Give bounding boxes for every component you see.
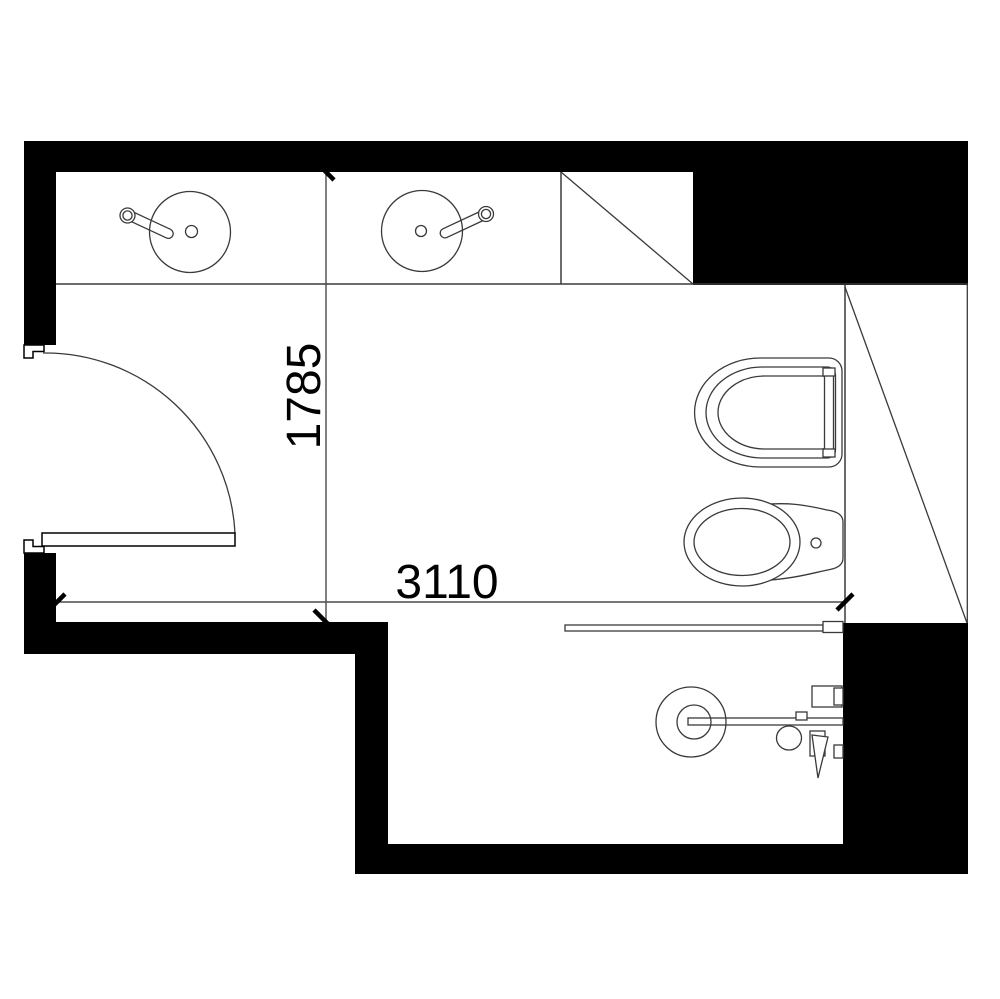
wall-bottom-main-room: [24, 622, 388, 654]
sink-left: [120, 192, 231, 273]
wall-shower-right: [843, 623, 968, 874]
slope-diagonal: [845, 287, 967, 623]
cabinet-diagonal: [561, 172, 693, 284]
floor-plan: 3110 1785: [0, 0, 1000, 999]
toilet-hinge-cap-top: [823, 368, 835, 376]
wall-top: [24, 141, 968, 172]
dim-height-label: 1785: [278, 343, 331, 450]
wall-shower-left: [355, 654, 388, 874]
door-leaf: [42, 533, 235, 546]
sloped-ceiling-zone: [845, 285, 967, 623]
door-jamb-bottom: [24, 540, 44, 553]
floor-plan-canvas: 3110 1785: [0, 0, 1000, 999]
walls: [24, 141, 968, 874]
faucet-base-inner: [123, 211, 132, 220]
toilet-seat-inner: [718, 376, 829, 449]
wall-left-lower: [24, 553, 56, 623]
dim-width-label: 3110: [395, 556, 498, 609]
mixer-wall-mount-top: [834, 688, 843, 705]
sink-right: [382, 191, 494, 272]
door-jamb-top: [24, 345, 44, 358]
shower: [565, 622, 843, 779]
shower-glass-panel: [565, 625, 823, 631]
mixer-knob: [796, 712, 807, 720]
wall-block-top-right: [693, 172, 968, 285]
sink-drain: [186, 226, 198, 238]
toilet-hinge-cap-bottom: [823, 449, 835, 457]
toilet-hinge-bar: [825, 374, 834, 451]
bidet: [684, 498, 843, 586]
shower-glass-end-post: [823, 622, 843, 633]
door-swing-arc: [43, 353, 235, 533]
entry-door: [24, 345, 235, 553]
mixer-wall-mount-bottom: [834, 745, 843, 758]
bidet-faucet-hole: [811, 538, 821, 548]
mixer-handle: [777, 726, 802, 750]
wall-hung-toilet: [695, 358, 842, 467]
faucet-base-inner: [481, 209, 490, 218]
wall-left-upper: [24, 141, 56, 345]
bidet-bowl-inner: [694, 509, 790, 576]
sink-drain: [416, 226, 427, 237]
